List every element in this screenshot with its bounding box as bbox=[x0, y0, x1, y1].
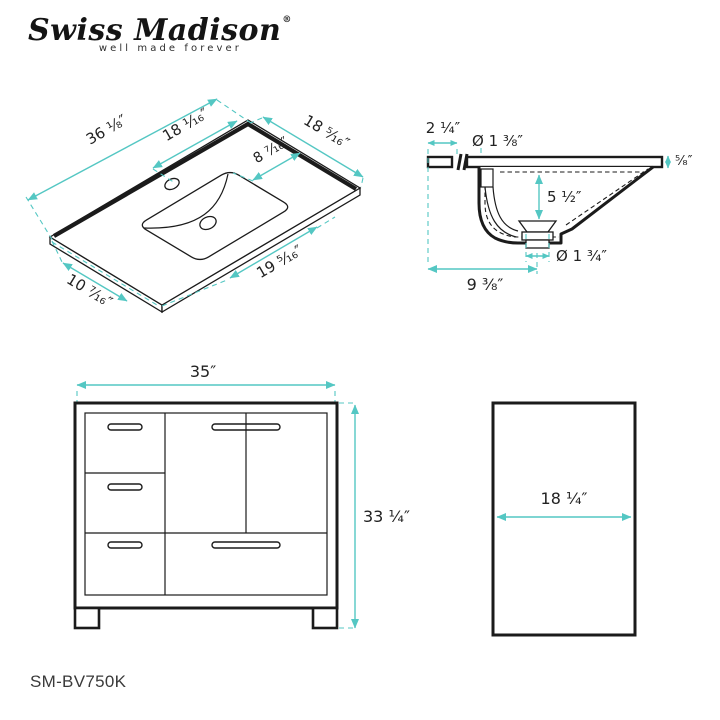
drain-tailpiece bbox=[526, 240, 549, 248]
dim-cabinet-height: 33 ¹⁄₄″ bbox=[339, 403, 410, 628]
overflow-channel bbox=[481, 169, 493, 187]
sink-cross-section-view: 2 ¹⁄₄″ Ø 1 ³⁄₈″ ⁵⁄₈″ 5 ¹⁄₂″ Ø 1 ³⁄₄″ bbox=[426, 119, 693, 294]
dim-label-drain-diameter: Ø 1 ³⁄₄″ bbox=[556, 247, 607, 265]
countertop-top-view: 36 ¹⁄₈″ 18 ¹⁄₁₆″ 8 ⁷⁄₁₆″ 18 ⁵⁄₁₆″ 19 ⁵⁄₁… bbox=[26, 99, 363, 312]
spec-sheet: Swiss Madison® well made forever SM-BV75… bbox=[0, 0, 720, 720]
dim-label-overall-width: 36 ¹⁄₈″ bbox=[83, 111, 130, 149]
cabinet-leg-left bbox=[75, 608, 99, 628]
dim-label-cabinet-height: 33 ¹⁄₄″ bbox=[363, 507, 410, 526]
counter-overhang bbox=[428, 157, 452, 167]
dim-back-overhang: 2 ¹⁄₄″ bbox=[426, 119, 461, 265]
dim-label-basin-depth: 5 ¹⁄₂″ bbox=[547, 188, 582, 206]
cabinet-body bbox=[75, 403, 337, 608]
dim-countertop-thickness: ⁵⁄₈″ bbox=[668, 154, 693, 169]
technical-drawing: 36 ¹⁄₈″ 18 ¹⁄₁₆″ 8 ⁷⁄₁₆″ 18 ⁵⁄₁₆″ 19 ⁵⁄₁… bbox=[0, 0, 720, 720]
vanity-front-view: 35″ bbox=[75, 362, 410, 628]
drain-locknut bbox=[522, 232, 553, 240]
dim-label-faucet-hole-diameter: Ø 1 ³⁄₈″ bbox=[472, 132, 523, 150]
dim-label-overall-depth: 18 ⁵⁄₁₆″ bbox=[301, 111, 353, 152]
vanity-side-view: 18 ¹⁄₄″ bbox=[493, 403, 635, 635]
counter-slab bbox=[467, 157, 662, 167]
dim-faucet-hole-diameter: Ø 1 ³⁄₈″ bbox=[472, 132, 523, 156]
dim-label-cabinet-width: 35″ bbox=[190, 362, 216, 381]
dim-edge-to-drain-center: 9 ³⁄₈″ bbox=[428, 253, 537, 294]
cabinet-leg-right bbox=[313, 608, 337, 628]
dim-label-edge-to-drain-center: 9 ³⁄₈″ bbox=[467, 275, 504, 294]
dim-cabinet-width: 35″ bbox=[77, 362, 335, 402]
dim-label-cabinet-depth: 18 ¹⁄₄″ bbox=[541, 489, 588, 508]
break-marks bbox=[458, 154, 467, 170]
dim-label-back-overhang: 2 ¹⁄₄″ bbox=[426, 119, 461, 137]
cabinet-side-panel bbox=[493, 403, 635, 635]
dim-label-countertop-thickness: ⁵⁄₈″ bbox=[675, 154, 693, 169]
